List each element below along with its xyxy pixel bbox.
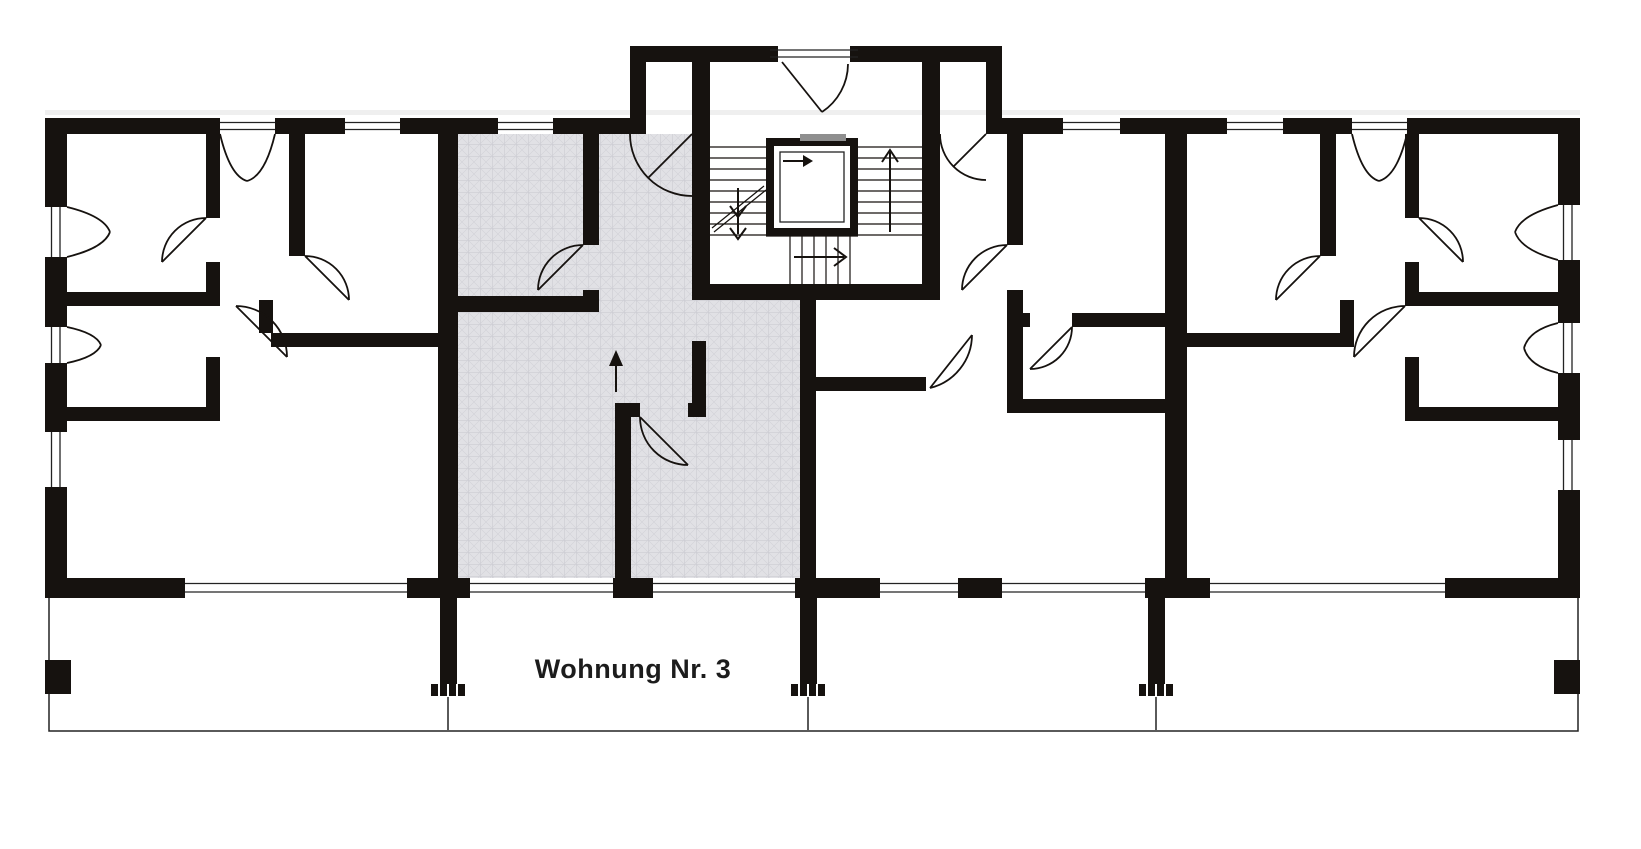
interior-door: [962, 245, 1007, 290]
interior-door: [236, 306, 287, 357]
interior-door: [305, 256, 349, 300]
interior-door: [162, 218, 206, 262]
elevator: [766, 134, 858, 236]
interior-door: [1354, 306, 1405, 357]
entrance-door: [782, 62, 848, 112]
floor-plan: Wohnung Nr. 3: [0, 0, 1641, 849]
stair-flight-lower: [766, 236, 858, 288]
floor-plan-drawing: Wohnung Nr. 3: [0, 0, 1641, 849]
facade-line: [45, 110, 1580, 115]
casement-window-icon: [67, 207, 110, 363]
balcony: [45, 598, 1580, 731]
casement-window-icon: [1515, 205, 1558, 373]
interior-door: [1419, 218, 1463, 262]
elevator-door: [800, 134, 846, 141]
interior-walls-left-apartment: [67, 134, 438, 421]
balcony-pillar-right: [1554, 660, 1580, 694]
apartment-label: Wohnung Nr. 3: [535, 654, 732, 684]
balcony-divider-cap: [431, 684, 1173, 696]
balcony-pillar-left: [45, 660, 71, 694]
interior-door: [930, 335, 972, 388]
apartment-entry-door: [940, 134, 986, 180]
interior-door: [1030, 327, 1072, 369]
interior-door: [1276, 256, 1320, 300]
interior-walls-center-right-apartment: [816, 134, 1165, 413]
stairwell: [710, 134, 922, 288]
